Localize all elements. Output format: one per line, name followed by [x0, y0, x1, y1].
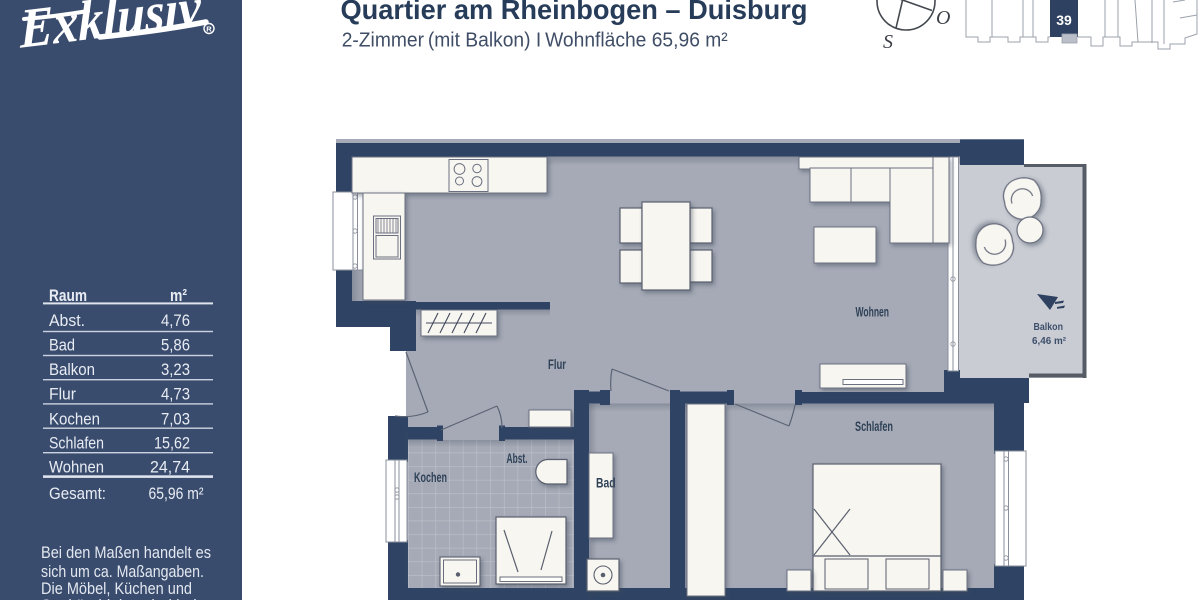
svg-text:Schlafen: Schlafen	[855, 418, 893, 434]
svg-text:Flur: Flur	[548, 356, 566, 372]
svg-text:Bad: Bad	[596, 475, 616, 491]
svg-text:6,46 m²: 6,46 m²	[1032, 335, 1066, 347]
svg-text:Wohnen: Wohnen	[856, 304, 890, 320]
svg-text:Abst.: Abst.	[507, 450, 528, 466]
svg-text:Balkon: Balkon	[1034, 321, 1064, 333]
svg-text:Kochen: Kochen	[414, 469, 447, 485]
